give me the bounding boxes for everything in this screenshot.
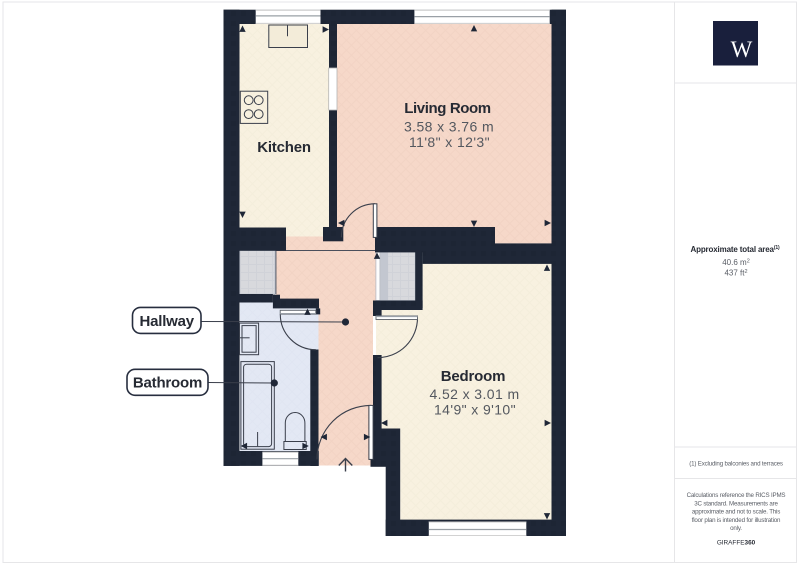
svg-text:Kitchen: Kitchen: [257, 139, 311, 156]
svg-text:3C standard. Measurements are: 3C standard. Measurements are: [694, 500, 778, 507]
svg-text:14'9" x 9'10": 14'9" x 9'10": [434, 402, 516, 418]
svg-text:GIRAFFE360: GIRAFFE360: [717, 540, 756, 547]
svg-text:floor plan is intended for ill: floor plan is intended for illustration: [692, 517, 781, 524]
svg-text:40.6 m2: 40.6 m2: [722, 258, 750, 267]
svg-text:(1) Excluding balconies and te: (1) Excluding balconies and terraces: [689, 461, 783, 468]
svg-text:Bedroom: Bedroom: [441, 368, 505, 385]
svg-text:Calculations reference the RIC: Calculations reference the RICS IPMS: [687, 492, 786, 499]
svg-text:Hallway: Hallway: [139, 313, 194, 330]
svg-text:only.: only.: [730, 525, 742, 532]
svg-text:4.52 x 3.01 m: 4.52 x 3.01 m: [429, 386, 519, 402]
svg-text:W: W: [731, 37, 753, 62]
svg-text:Approximate total area(1): Approximate total area(1): [690, 245, 780, 254]
svg-text:437 ft2: 437 ft2: [724, 269, 747, 278]
svg-text:3.58 x 3.76 m: 3.58 x 3.76 m: [404, 119, 494, 135]
svg-text:approximate and not to scale.: approximate and not to scale. This: [692, 509, 780, 516]
svg-text:11'8" x 12'3": 11'8" x 12'3": [409, 134, 490, 150]
svg-text:Living Room: Living Room: [404, 100, 490, 117]
svg-text:Bathroom: Bathroom: [133, 375, 202, 392]
